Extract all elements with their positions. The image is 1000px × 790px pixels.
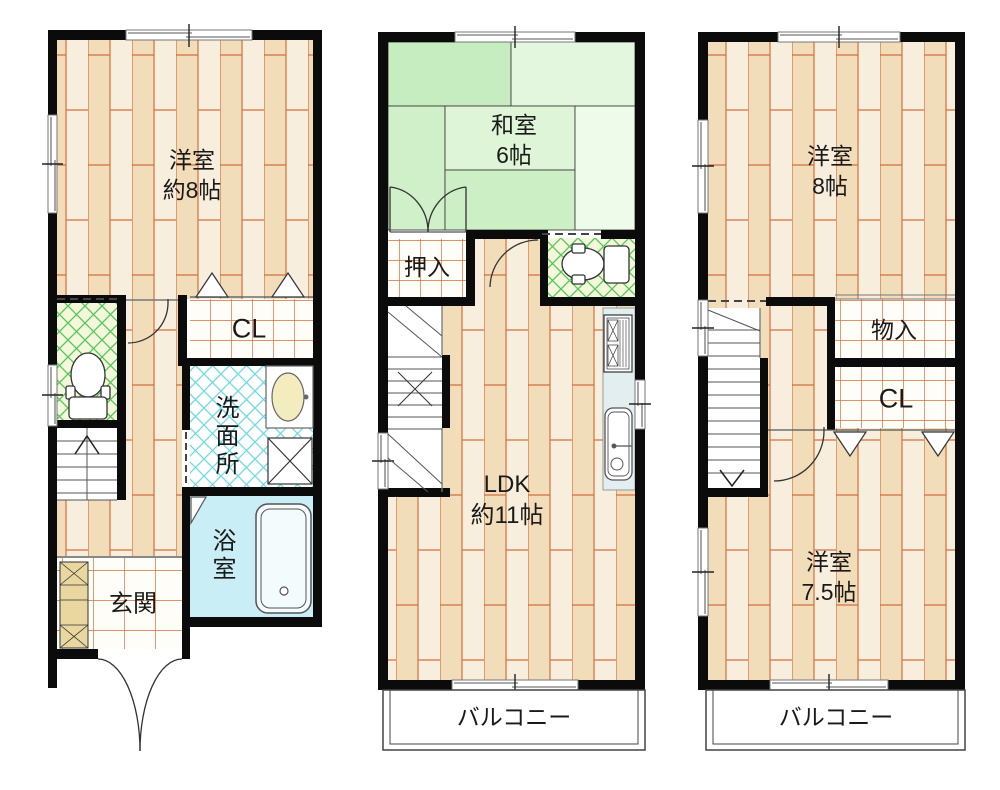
room-label-closet-f3: CL (879, 381, 914, 416)
room-label-western-8-f1: 洋室 約8帖 (163, 146, 222, 206)
balcony-label-f2: バルコニー (457, 703, 572, 733)
room-label-japanese: 和室 6帖 (491, 111, 537, 171)
entrance-double-door-arcs (98, 659, 182, 751)
stairs-area (708, 308, 760, 488)
floor-plan-1 (42, 24, 322, 751)
shoe-cabinet-icon (60, 562, 88, 648)
room-label-bathroom: 浴室 (209, 528, 233, 584)
room-label-oshiire: 押入 (404, 253, 450, 283)
room-label-western-8-f3: 洋室 8帖 (807, 142, 853, 202)
room-label-closet-f1: CL (232, 311, 267, 346)
sink-icon (266, 366, 313, 428)
kitchen-sink-icon (605, 408, 632, 480)
room-label-washroom: 洗面所 (212, 395, 236, 479)
hallway-floor (126, 299, 182, 558)
floor-plan-3 (692, 26, 965, 750)
floor-plan-image: 洋室 約8帖 CL 洗面所 浴室 玄関 和室 6帖 押入 LDK 約11帖 バル… (0, 0, 1000, 790)
room-label-ldk: LDK 約11帖 (471, 469, 544, 531)
bathtub-icon (256, 504, 311, 613)
washing-machine-icon (268, 438, 312, 484)
balcony-label-f3: バルコニー (779, 703, 894, 733)
stove-icon (604, 315, 632, 372)
room-label-storage: 物入 (871, 316, 917, 346)
room-label-entrance: 玄関 (109, 588, 157, 619)
room-label-western-7-5: 洋室 7.5帖 (802, 548, 857, 608)
hallway-floor (57, 500, 126, 558)
